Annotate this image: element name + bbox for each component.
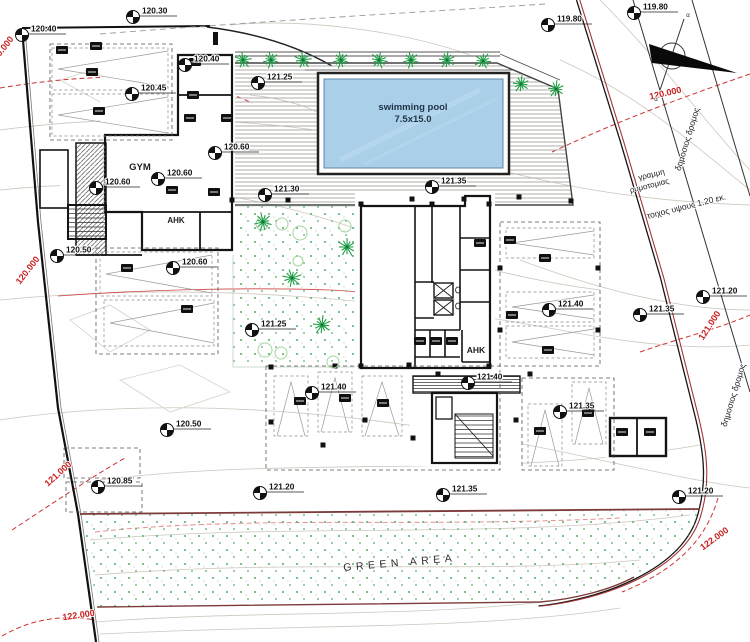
- unit-chip: [542, 346, 554, 354]
- unit-chip: [377, 399, 389, 407]
- unit-chip: [644, 428, 656, 436]
- spot-elevation-value: 121.35: [441, 176, 467, 186]
- column: [487, 202, 492, 207]
- column: [498, 266, 503, 271]
- column: [528, 372, 533, 377]
- parking-stall: [506, 228, 594, 258]
- spot-elevation: 119.80: [628, 2, 679, 20]
- spot-elevation: 121.20: [254, 482, 305, 500]
- spot-elevation-value: 120.60: [167, 168, 193, 178]
- contour-elevation-label: 121.000: [696, 309, 722, 342]
- column: [269, 420, 274, 425]
- spot-elevation-value: 121.40: [558, 299, 584, 309]
- spot-elevation: 120.40: [16, 24, 67, 42]
- column: [230, 198, 235, 203]
- spot-elevation-value: 121.20: [712, 286, 738, 296]
- unit-chip: [339, 394, 351, 402]
- unit-chip: [181, 305, 193, 313]
- unit-chip: [90, 42, 102, 50]
- parking-lot: [522, 378, 614, 470]
- parking-stall: [104, 300, 214, 346]
- ahk-label-central: AHK: [467, 345, 486, 355]
- unit-chip: [166, 186, 178, 194]
- spot-elevation: 121.20: [673, 486, 724, 504]
- column: [436, 372, 441, 377]
- spot-elevation-value: 121.25: [267, 72, 293, 82]
- unit-chip: [414, 337, 426, 345]
- spot-elevation-value: 120.85: [107, 476, 133, 486]
- spot-elevation: 120.50: [161, 419, 212, 437]
- unit-chip: [93, 107, 105, 115]
- parking-stall: [274, 376, 308, 436]
- spot-elevation: 120.60: [167, 257, 218, 275]
- spot-elevation-value: 120.45: [141, 83, 167, 93]
- spot-elevation-value: 120.50: [66, 245, 92, 255]
- spot-elevation-value: 120.40: [194, 54, 220, 64]
- spot-elevation: 121.35: [634, 304, 685, 322]
- spot-elevation-value: 121.20: [688, 486, 714, 496]
- pool-size-label: 7.5x15.0: [395, 114, 432, 125]
- north-arrow: [649, 19, 737, 93]
- spot-elevation-value: 120.30: [142, 6, 168, 16]
- contour-elevation-label: 122.000: [62, 608, 96, 622]
- site-plan-canvas: swimming pool 7.5x15.0 GREEN AREA GYM AH…: [0, 0, 750, 642]
- unit-chip: [187, 91, 199, 99]
- spot-elevation-value: 120.40: [31, 24, 57, 34]
- spot-elevation-value: 120.50: [176, 419, 202, 429]
- site-plan-drawing: swimming pool 7.5x15.0 GREEN AREA GYM AH…: [0, 0, 750, 642]
- spot-elevation: 121.35: [554, 401, 605, 419]
- column: [487, 364, 492, 369]
- unit-chip: [446, 337, 458, 345]
- road-annotation: δημοσιος δρομος: [719, 362, 748, 427]
- spot-elevation-value: 121.20: [269, 482, 295, 492]
- spot-elevation-value: 121.40: [321, 382, 347, 392]
- road-annotation: δημοσιος δρομος: [673, 106, 702, 171]
- contour-elevation-label: 122.000: [698, 525, 730, 552]
- column: [462, 197, 467, 202]
- column: [411, 436, 416, 441]
- unit-chip: [534, 427, 546, 435]
- spot-elevation-value: 121.25: [261, 319, 287, 329]
- spot-elevation-value: 121.40: [477, 372, 503, 382]
- column: [269, 365, 274, 370]
- column: [410, 197, 415, 202]
- road-annotation: τοιχος υψους 1.20 εκ.: [646, 191, 727, 220]
- column: [596, 266, 601, 271]
- spot-elevation-value: 121.35: [452, 484, 478, 494]
- contour-elevation-label: 120.000: [0, 34, 16, 66]
- spot-elevation-value: 119.80: [557, 14, 582, 24]
- unit-chip: [430, 337, 442, 345]
- swimming-pool: swimming pool 7.5x15.0: [318, 73, 509, 174]
- unit-chip: [184, 114, 196, 122]
- column: [517, 195, 522, 200]
- road-annotation: α: [654, 97, 658, 103]
- unit-chip: [539, 254, 551, 262]
- unit-chip: [56, 46, 68, 54]
- spot-elevation: 121.20: [697, 286, 748, 304]
- column: [359, 364, 364, 369]
- unit-chip: [86, 68, 98, 76]
- parking-lot: [64, 448, 140, 478]
- column: [498, 328, 503, 333]
- column: [430, 202, 435, 207]
- spot-elevation: 120.30: [127, 6, 178, 24]
- column: [321, 443, 326, 448]
- road-annotation: α: [686, 13, 690, 19]
- contour-elevation-label: 120.000: [14, 254, 42, 286]
- unit-chip: [504, 236, 516, 244]
- column: [407, 363, 412, 368]
- column: [596, 328, 601, 333]
- spot-elevation-value: 119.80: [643, 2, 668, 12]
- unit-chip: [294, 397, 306, 405]
- spot-elevation-value: 120.60: [224, 142, 250, 152]
- contour-elevation-label: 121.000: [43, 459, 74, 488]
- ahk-label-west: AHK: [167, 216, 185, 225]
- spot-elevation: 121.35: [437, 484, 488, 502]
- unit-chip: [474, 239, 486, 247]
- pool-label: swimming pool: [378, 102, 447, 113]
- gym-label: GYM: [129, 162, 151, 173]
- unit-chip: [221, 114, 233, 122]
- unit-chip: [616, 428, 628, 436]
- spot-elevation-value: 120.60: [182, 257, 208, 267]
- spot-elevation: 120.85: [92, 476, 143, 494]
- spot-elevation-value: 121.35: [569, 401, 595, 411]
- column: [359, 202, 364, 207]
- unit-chip: [506, 311, 518, 319]
- column: [286, 198, 291, 203]
- spot-elevation-value: 121.35: [649, 304, 675, 314]
- unit-chip: [208, 188, 220, 196]
- column: [514, 418, 519, 423]
- column: [363, 418, 368, 423]
- unit-chip: [121, 264, 133, 272]
- spot-elevation-value: 121.30: [274, 184, 300, 194]
- column: [569, 199, 574, 204]
- spot-elevation-value: 120.60: [105, 177, 131, 187]
